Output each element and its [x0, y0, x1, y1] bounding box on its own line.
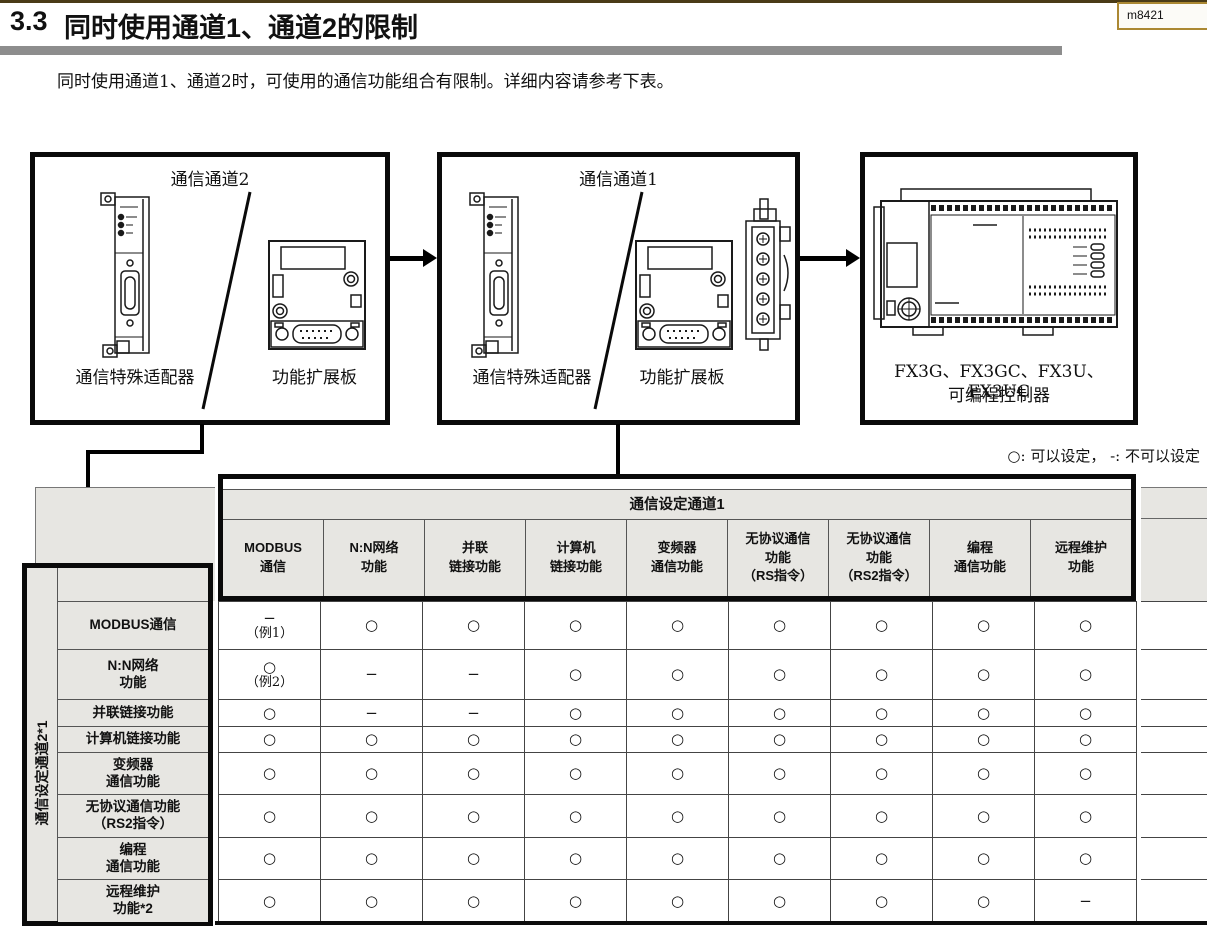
row-group-column: 通信设定通道2*1 — [27, 568, 58, 921]
table-cell: ○ — [831, 727, 933, 752]
table-cell: ○ — [525, 650, 627, 699]
table-cell: ○ — [1035, 753, 1137, 794]
table-cell: ○ — [729, 602, 831, 649]
table-cell: ○ — [627, 838, 729, 879]
table-cell: ○ — [525, 795, 627, 837]
manual-page: m8421 3.3 同时使用通道1、通道2的限制 同时使用通道1、通道2时，可使… — [0, 0, 1207, 935]
column-group-header: 通信设定通道1 — [223, 489, 1131, 519]
table-row: ○○○○○○○○○ — [219, 795, 1137, 838]
table-cell: ○ — [321, 753, 423, 794]
table-cell: ○ — [219, 838, 321, 879]
connector-channel1-v — [616, 424, 620, 477]
legend-text: ○: 可以设定， -: 不可以设定 — [700, 445, 1200, 466]
expansion-board-icon — [634, 239, 734, 351]
table-row: ○○○○○○○○○ — [219, 838, 1137, 880]
column-header-cell: 编程通信功能 — [929, 520, 1030, 596]
row-header-box: 通信设定通道2*1 MODBUS通信N:N网络功能并联链接功能计算机链接功能变频… — [22, 563, 213, 926]
column-header-cell: N:N网络功能 — [323, 520, 424, 596]
page-title: 同时使用通道1、通道2的限制 — [64, 6, 418, 45]
table-cell: ○ — [321, 795, 423, 837]
table-cell: ○ — [831, 753, 933, 794]
table-cell: ○ — [321, 602, 423, 649]
table-continuation-row — [1141, 602, 1207, 650]
table-row: ○○○○○○○○○ — [219, 727, 1137, 753]
table-bottom-border — [215, 921, 1207, 925]
adapter-label: 通信特殊适配器 — [442, 363, 622, 388]
arrow-ch1-to-plc — [800, 256, 846, 261]
row-label: 无协议通信功能（RS2指令） — [58, 794, 208, 837]
table-cell: − — [321, 650, 423, 699]
column-header-cell: 计算机链接功能 — [525, 520, 626, 596]
intro-paragraph: 同时使用通道1、通道2时，可使用的通信功能组合有限制。详细内容请参考下表。 — [57, 67, 674, 92]
table-cell: ○ — [729, 650, 831, 699]
column-headers: MODBUS通信N:N网络功能并联链接功能计算机链接功能变频器通信功能无协议通信… — [223, 519, 1131, 596]
table-row: ○−−○○○○○○ — [219, 700, 1137, 727]
table-cell: ○ — [627, 700, 729, 726]
channel1-box: 通信通道1 — [437, 152, 800, 425]
table-cell: ○ — [729, 727, 831, 752]
table-cell: ○ — [933, 602, 1035, 649]
table-cell: ○ — [219, 795, 321, 837]
column-header-box: 通信设定通道1 MODBUS通信N:N网络功能并联链接功能计算机链接功能变频器通… — [218, 474, 1136, 601]
row-label: 变频器通信功能 — [58, 752, 208, 794]
table-cell: ○ — [525, 602, 627, 649]
column-header-cell: 并联链接功能 — [424, 520, 525, 596]
arrow-ch2-to-ch1 — [390, 256, 423, 261]
table-row: ○○○○○○○○− — [219, 880, 1137, 923]
table-cell: ○ — [219, 880, 321, 922]
table-cell: ○ — [729, 838, 831, 879]
table-cell: ○ — [423, 753, 525, 794]
table-cell: ○ — [729, 753, 831, 794]
table-cell: ○ — [933, 650, 1035, 699]
column-header-cell: 远程维护功能 — [1030, 520, 1131, 596]
table-cell: ○ — [831, 650, 933, 699]
arrow-ch2-to-ch1-head — [423, 249, 437, 267]
table-cell: ○ — [729, 795, 831, 837]
table-cell: ○ — [627, 602, 729, 649]
table-cell: ○ — [627, 753, 729, 794]
plc-label: 可编程控制器 — [865, 381, 1133, 406]
table-cell: ○ — [423, 880, 525, 922]
table-cell: ○ — [1035, 838, 1137, 879]
terminal-block-icon — [738, 197, 794, 352]
table-cell: − — [423, 700, 525, 726]
row-label: N:N网络功能 — [58, 649, 208, 699]
table-cell: ○ — [933, 838, 1035, 879]
table-cell: ○ — [525, 753, 627, 794]
row-group-header: 通信设定通道2*1 — [32, 720, 52, 825]
table-continuation-row — [1141, 753, 1207, 795]
table-cell: ○ — [831, 795, 933, 837]
arrow-ch1-to-plc-head — [846, 249, 860, 267]
column-header-cell: 无协议通信功能（RS2指令） — [828, 520, 929, 596]
table-cell: ○ — [525, 727, 627, 752]
row-labels: MODBUS通信N:N网络功能并联链接功能计算机链接功能变频器通信功能无协议通信… — [58, 601, 208, 922]
connector-channel2-h — [86, 450, 204, 454]
table-continuation-row — [1141, 650, 1207, 700]
channel1-title: 通信通道1 — [442, 165, 795, 190]
table-cell: ○ — [423, 838, 525, 879]
data-grid: −（例1）○○○○○○○○○（例2）−−○○○○○○○−−○○○○○○○○○○○… — [218, 601, 1137, 923]
table-cell: ○ — [933, 880, 1035, 922]
board-label: 功能扩展板 — [612, 363, 752, 388]
table-continuation-row — [1141, 700, 1207, 727]
table-cell: ○ — [933, 727, 1035, 752]
table-cell: ○ — [831, 838, 933, 879]
table-cell: ○ — [321, 880, 423, 922]
board-label: 功能扩展板 — [247, 363, 382, 388]
table-continuation-rows — [1141, 601, 1207, 923]
table-cell: ○ — [423, 727, 525, 752]
table-cell: ○ — [831, 700, 933, 726]
table-row: ○○○○○○○○○ — [219, 753, 1137, 795]
table-cell: ○ — [1035, 727, 1137, 752]
table-header-continuation — [1141, 487, 1207, 601]
bookmark-field[interactable]: m8421 — [1117, 2, 1207, 30]
column-header-cell: 变频器通信功能 — [626, 520, 727, 596]
communication-adapter-icon — [93, 191, 171, 361]
communication-adapter-icon — [462, 191, 540, 361]
table-cell: ○ — [627, 650, 729, 699]
row-label: 计算机链接功能 — [58, 726, 208, 752]
table-cell: − — [423, 650, 525, 699]
table-cell: ○ — [525, 838, 627, 879]
table-cell: ○ — [627, 795, 729, 837]
table-cell: −（例1） — [219, 602, 321, 649]
row-label: 远程维护功能*2 — [58, 879, 208, 922]
table-cell: ○ — [933, 753, 1035, 794]
table-cell: ○ — [1035, 795, 1137, 837]
table-cell: ○ — [831, 880, 933, 922]
column-header-cell: 无协议通信功能（RS指令） — [727, 520, 828, 596]
table-cell: ○ — [219, 700, 321, 726]
table-cell: ○ — [423, 602, 525, 649]
table-cell: ○ — [423, 795, 525, 837]
table-cell: ○ — [321, 838, 423, 879]
table-cell: ○ — [627, 727, 729, 752]
table-continuation-row — [1141, 795, 1207, 838]
table-cell: − — [1035, 880, 1137, 922]
table-row: −（例1）○○○○○○○○ — [219, 602, 1137, 650]
adapter-label: 通信特殊适配器 — [35, 363, 235, 388]
title-rule — [0, 46, 1062, 55]
table-cell: ○ — [321, 727, 423, 752]
table-cell: ○（例2） — [219, 650, 321, 699]
table-cell: ○ — [933, 795, 1035, 837]
expansion-board-icon — [267, 239, 367, 351]
channel2-title: 通信通道2 — [35, 165, 385, 190]
plc-box: FX3G、FX3GC、FX3U、FX3UC 可编程控制器 — [860, 152, 1138, 425]
table-cell: ○ — [933, 700, 1035, 726]
table-continuation-row — [1141, 727, 1207, 753]
table-cell: ○ — [1035, 650, 1137, 699]
table-cell: ○ — [219, 753, 321, 794]
table-cell: ○ — [1035, 700, 1137, 726]
table-cell: ○ — [729, 700, 831, 726]
table-cell: − — [321, 700, 423, 726]
channel2-box: 通信通道2 — [30, 152, 390, 425]
section-number: 3.3 — [10, 6, 48, 37]
table-cell: ○ — [1035, 602, 1137, 649]
row-label: MODBUS通信 — [58, 601, 208, 649]
row-label: 编程通信功能 — [58, 837, 208, 879]
table-row: ○（例2）−−○○○○○○ — [219, 650, 1137, 700]
table-cell: ○ — [627, 880, 729, 922]
table-cell: ○ — [831, 602, 933, 649]
row-label: 并联链接功能 — [58, 699, 208, 726]
table-continuation-row — [1141, 838, 1207, 880]
table-cell: ○ — [219, 727, 321, 752]
table-cell: ○ — [525, 880, 627, 922]
column-header-cell: MODBUS通信 — [223, 520, 323, 596]
table-cell: ○ — [729, 880, 831, 922]
table-continuation-row — [1141, 880, 1207, 923]
table-cell: ○ — [525, 700, 627, 726]
header-continuation-line — [1141, 518, 1207, 519]
plc-controller-icon — [873, 185, 1125, 350]
page-top-border — [0, 0, 1207, 3]
